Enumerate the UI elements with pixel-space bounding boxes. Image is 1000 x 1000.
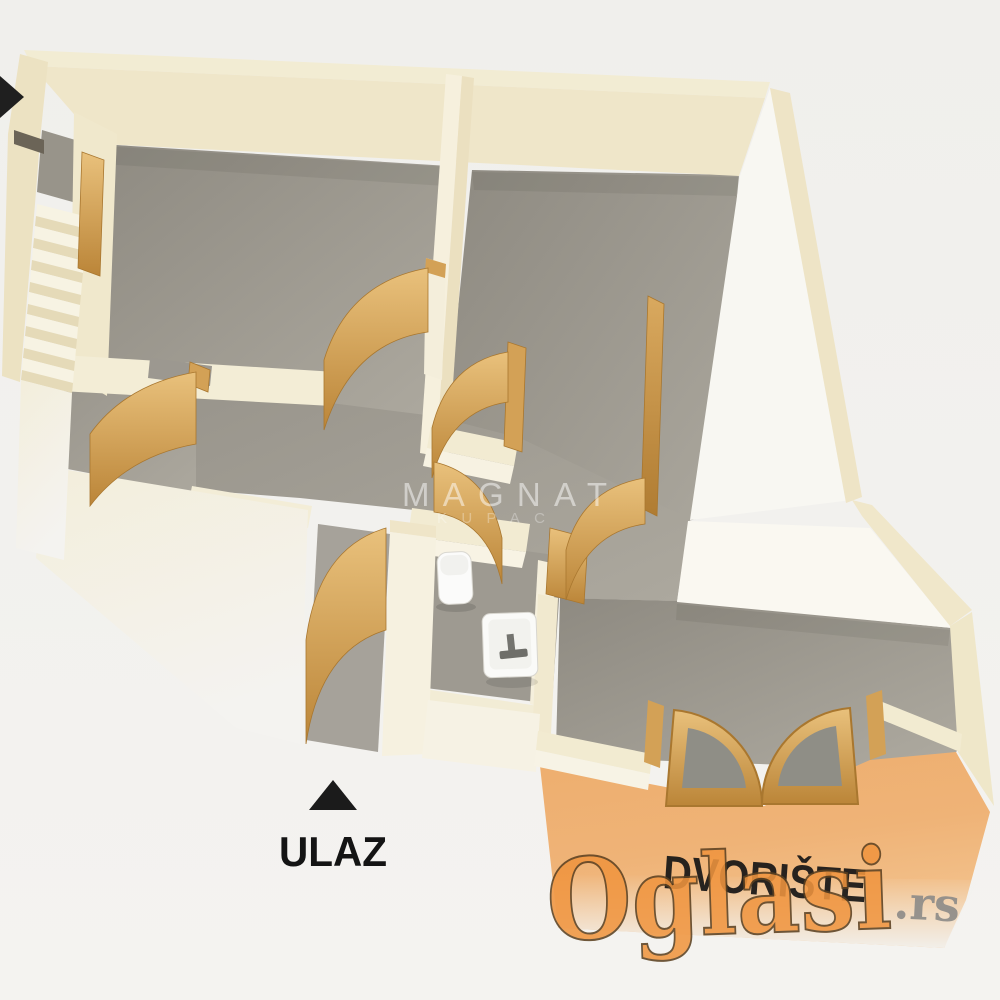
floor-plan-screenshot: MAGNAT KUPAC DVORIŠTE Oglasi .rs ULAZ xyxy=(0,0,1000,1000)
floor-plan-scene: MAGNAT KUPAC DVORIŠTE Oglasi .rs ULAZ xyxy=(0,0,1000,1000)
toilet-lid xyxy=(440,554,469,575)
stair-door-leaf xyxy=(78,152,104,276)
portal-logo: Oglasi xyxy=(544,824,893,967)
portal-tld: .rs xyxy=(892,875,961,932)
wall-under-stairs xyxy=(16,380,72,560)
entrance-label: ULAZ xyxy=(279,828,387,875)
